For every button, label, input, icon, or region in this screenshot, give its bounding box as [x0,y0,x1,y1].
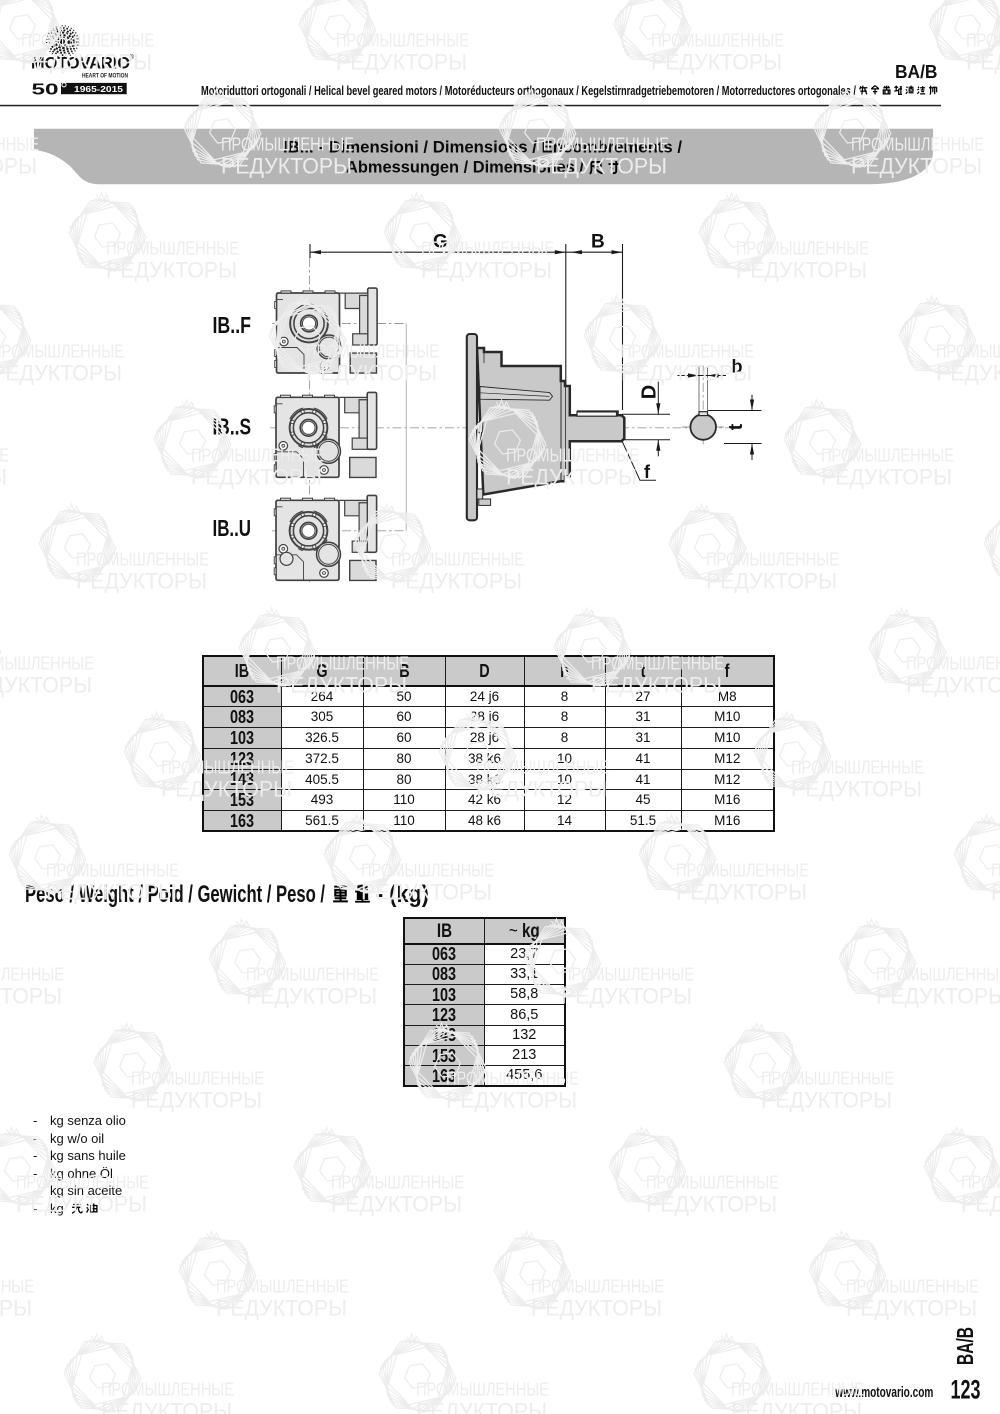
svg-text:IB..S: IB..S [213,414,252,440]
svg-text:IB..U: IB..U [213,515,252,541]
svg-text:B: B [591,232,605,253]
svg-text:f: f [644,462,651,482]
svg-text:- (kg): - (kg) [376,881,429,908]
svg-text:Peso / Weight / Poid / Gewicht: Peso / Weight / Poid / Gewicht / Peso / [25,881,325,908]
svg-text:123: 123 [951,1375,981,1405]
svg-text:D: D [639,385,661,399]
svg-text:BA/B: BA/B [952,1327,978,1365]
svg-text:www.motovario.com: www.motovario.com [835,1385,934,1401]
svg-text:IB..F: IB..F [213,312,252,338]
svg-text:t: t [725,423,747,430]
svg-text:G: G [433,232,448,253]
svg-text:b: b [732,357,743,377]
